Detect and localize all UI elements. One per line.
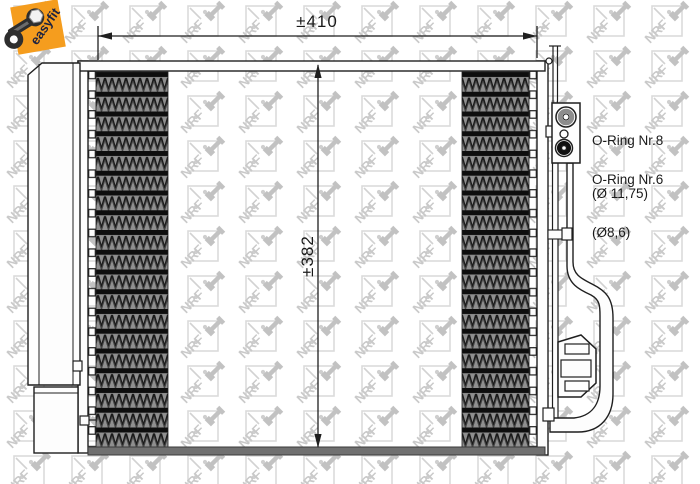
pipe-bracket-tab (562, 228, 572, 240)
oring6-title: O-Ring Nr.6 (592, 171, 663, 189)
bottom-side-plate (88, 447, 545, 455)
left-mounting-panel (28, 63, 82, 385)
oring6-annotation: O-Ring Nr.6 (Ø8,6) (592, 136, 663, 276)
easyfit-badge: easyfit (10, 0, 66, 55)
top-bolt (546, 58, 552, 64)
inner-pipe (553, 163, 559, 424)
top-side-plate (78, 61, 545, 71)
oring6-diameter: (Ø8,6) (592, 224, 663, 242)
height-dimension-label: ±382 (298, 206, 318, 306)
width-dimension-label: ±410 (257, 12, 377, 32)
technical-drawing-page: NRF (0, 0, 700, 484)
pipe-tank-fitting (543, 408, 554, 421)
slotted-bracket (558, 335, 596, 397)
center-bolt-hole (560, 130, 568, 138)
right-tank (537, 61, 548, 455)
